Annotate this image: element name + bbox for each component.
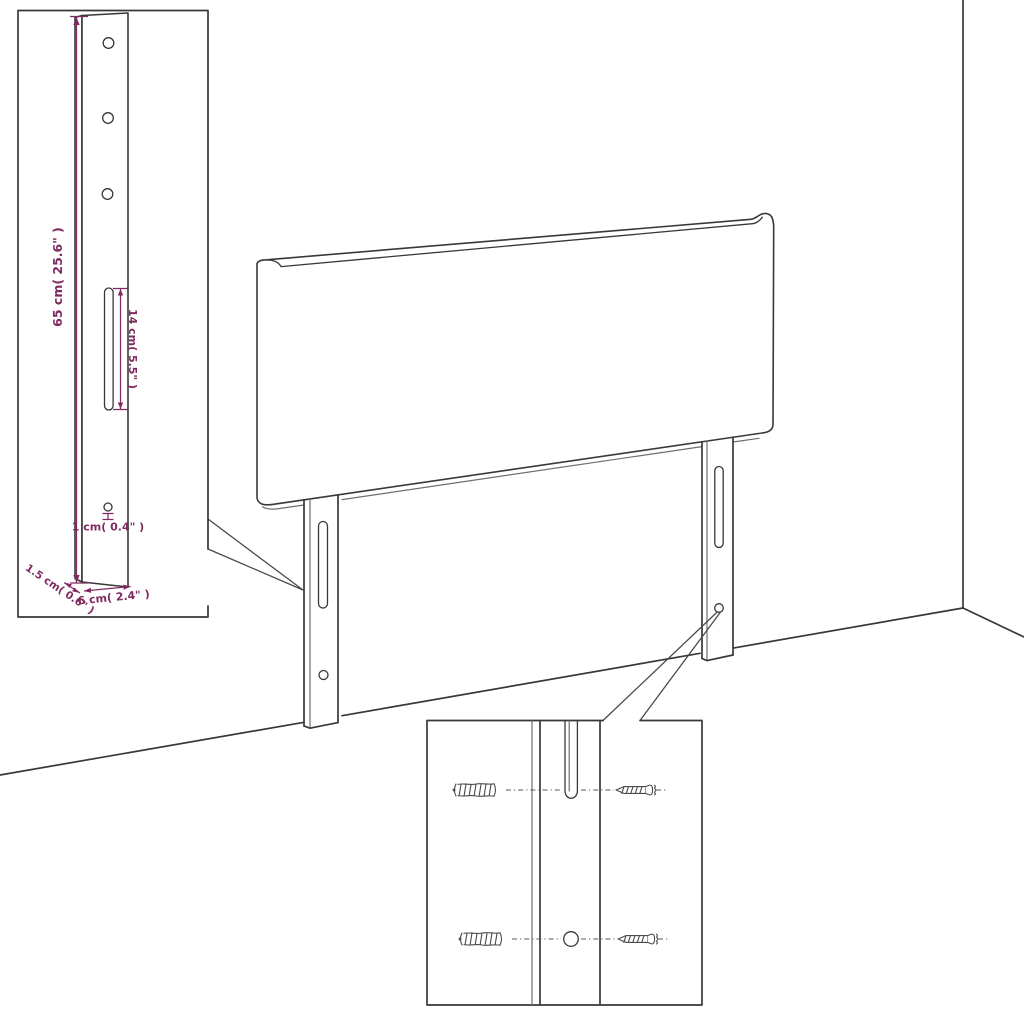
headboard-right-leg — [702, 437, 733, 660]
left-leg-slot — [319, 522, 328, 609]
mounting-slot — [565, 721, 577, 798]
floor-line-left — [0, 608, 963, 775]
right-leg-slot — [715, 467, 723, 548]
dimension-slot-length-label: 14 cm( 5.5" ) — [126, 309, 139, 389]
bracket-detail-inset: 65 cm( 25.6" ) 14 cm( 5.5" ) 1 cm( 0.4" … — [18, 11, 208, 618]
leg-strip-closeup — [532, 721, 600, 1005]
dimension-height-label: 65 cm( 25.6" ) — [50, 227, 65, 327]
headboard-left-leg — [304, 495, 338, 728]
mounting-detail-inset — [427, 721, 702, 1006]
dimension-hole-diameter-label: 1 cm( 0.4" ) — [72, 521, 144, 534]
mounting-hole — [564, 932, 579, 947]
headboard-front-face — [257, 213, 774, 504]
dimension-width: 6 cm( 2.4" ) — [77, 585, 150, 608]
diagram-stage: 65 cm( 25.6" ) 14 cm( 5.5" ) 1 cm( 0.4" … — [0, 0, 1024, 1024]
headboard-mounting-diagram: 65 cm( 25.6" ) 14 cm( 5.5" ) 1 cm( 0.4" … — [0, 0, 1024, 1024]
right-leg-hole — [715, 604, 724, 613]
headboard-panel — [257, 213, 774, 509]
left-leg-hole — [319, 671, 328, 680]
hardware-row-upper — [453, 784, 668, 797]
callout-lines-bracket-inset — [208, 519, 303, 590]
floor-line-right — [963, 608, 1024, 637]
